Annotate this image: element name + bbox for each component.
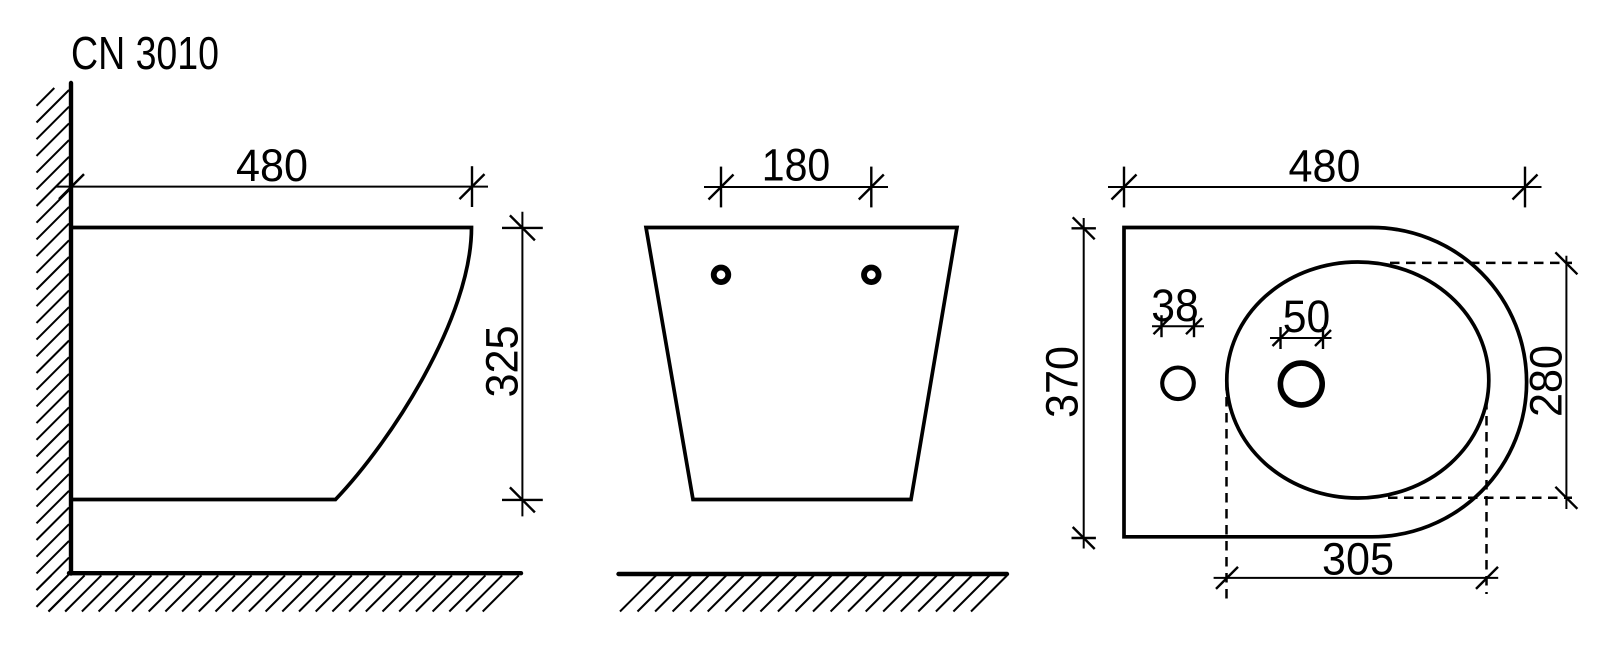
svg-text:325: 325: [477, 326, 528, 398]
svg-text:305: 305: [1322, 534, 1394, 585]
svg-text:480: 480: [236, 140, 308, 191]
svg-text:280: 280: [1521, 345, 1572, 417]
svg-text:50: 50: [1283, 291, 1331, 342]
svg-text:480: 480: [1289, 141, 1361, 192]
svg-text:180: 180: [762, 140, 831, 191]
svg-text:38: 38: [1151, 280, 1199, 331]
svg-text:370: 370: [1036, 346, 1087, 418]
svg-text:CN 3010: CN 3010: [71, 27, 219, 79]
